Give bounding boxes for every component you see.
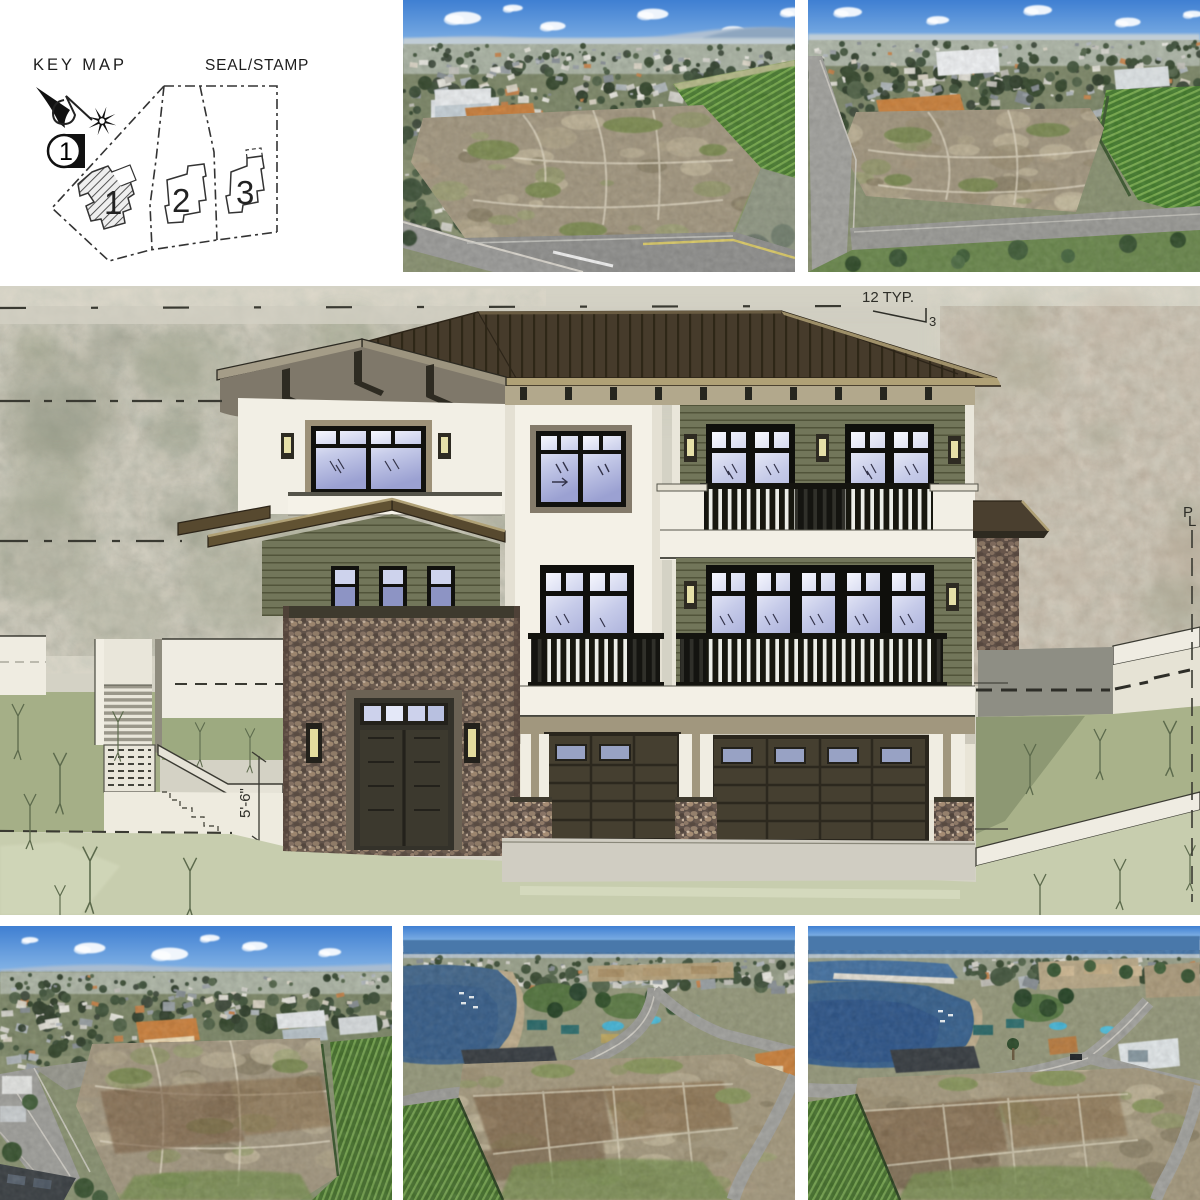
svg-text:1: 1 bbox=[104, 184, 122, 221]
svg-text:3: 3 bbox=[236, 174, 254, 211]
svg-text:12 TYP.: 12 TYP. bbox=[862, 289, 914, 306]
svg-text:3: 3 bbox=[929, 314, 936, 329]
svg-text:1: 1 bbox=[59, 138, 73, 166]
svg-text:SEAL/STAMP: SEAL/STAMP bbox=[205, 57, 309, 74]
svg-text:L: L bbox=[1188, 513, 1196, 530]
svg-text:5'-6": 5'-6" bbox=[237, 788, 254, 818]
svg-text:2: 2 bbox=[172, 182, 190, 219]
svg-text:KEY MAP: KEY MAP bbox=[33, 56, 127, 74]
